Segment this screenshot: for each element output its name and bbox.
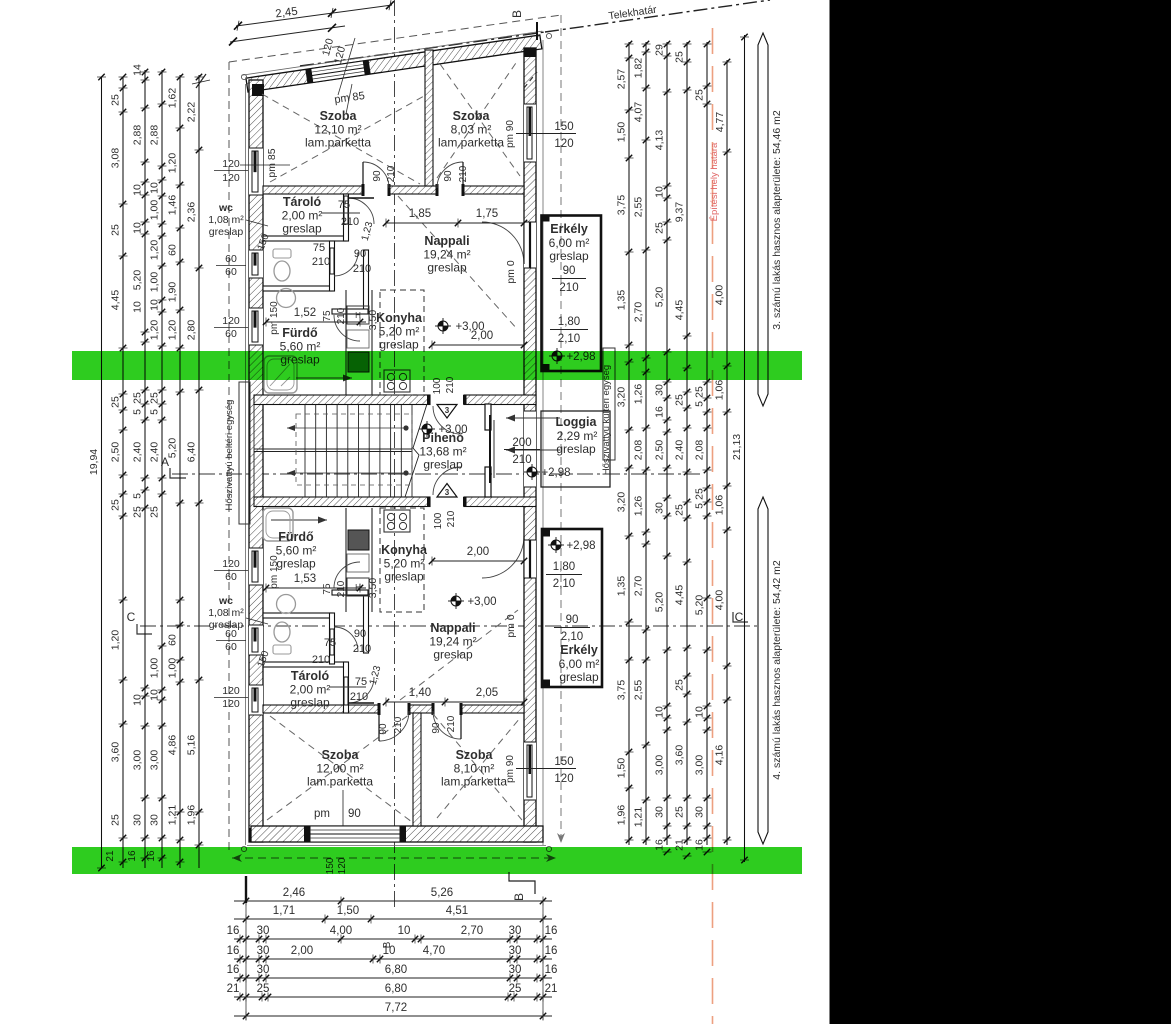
svg-text:120: 120 bbox=[554, 138, 573, 150]
svg-text:210: 210 bbox=[512, 454, 531, 466]
svg-text:5: 5 bbox=[694, 401, 706, 407]
svg-text:16: 16 bbox=[227, 925, 240, 937]
svg-text:Nappali: Nappali bbox=[430, 621, 475, 635]
svg-text:75: 75 bbox=[355, 676, 367, 688]
svg-text:4,77: 4,77 bbox=[714, 112, 726, 133]
svg-text:13,68 m²: 13,68 m² bbox=[419, 445, 466, 459]
svg-text:4,13: 4,13 bbox=[654, 130, 666, 151]
svg-text:3,00: 3,00 bbox=[149, 750, 161, 771]
svg-text:5,20 m²: 5,20 m² bbox=[379, 325, 420, 339]
svg-text:greslap: greslap bbox=[384, 570, 424, 584]
svg-text:30: 30 bbox=[509, 945, 522, 957]
svg-text:pm 90: pm 90 bbox=[505, 120, 516, 148]
svg-text:2,05: 2,05 bbox=[476, 687, 498, 699]
svg-text:3,00: 3,00 bbox=[694, 755, 706, 776]
svg-text:5,20: 5,20 bbox=[654, 592, 666, 613]
svg-text:75: 75 bbox=[322, 310, 333, 322]
svg-text:3,20: 3,20 bbox=[616, 387, 628, 408]
svg-text:1,20: 1,20 bbox=[167, 320, 179, 341]
svg-text:1,82: 1,82 bbox=[633, 58, 645, 79]
svg-text:16: 16 bbox=[654, 406, 666, 418]
svg-text:25: 25 bbox=[654, 222, 666, 234]
svg-text:pm 150: pm 150 bbox=[269, 555, 280, 589]
svg-text:pm 90: pm 90 bbox=[505, 755, 516, 783]
svg-text:2,55: 2,55 bbox=[633, 680, 645, 701]
svg-text:1,50: 1,50 bbox=[616, 122, 628, 143]
svg-text:90: 90 bbox=[431, 722, 442, 734]
svg-text:2,00: 2,00 bbox=[471, 330, 493, 342]
svg-text:90: 90 bbox=[443, 170, 454, 182]
svg-text:16: 16 bbox=[545, 964, 558, 976]
svg-text:Fürdő: Fürdő bbox=[278, 530, 314, 544]
svg-text:greslap: greslap bbox=[559, 670, 599, 684]
svg-text:2,10: 2,10 bbox=[553, 578, 575, 590]
svg-text:25: 25 bbox=[110, 499, 122, 511]
svg-text:30: 30 bbox=[149, 814, 161, 826]
svg-text:210: 210 bbox=[446, 510, 457, 527]
svg-text:4,07: 4,07 bbox=[633, 102, 645, 123]
svg-text:1,50: 1,50 bbox=[337, 905, 359, 917]
svg-text:30: 30 bbox=[257, 945, 270, 957]
svg-text:19,94: 19,94 bbox=[88, 449, 100, 475]
svg-text:30: 30 bbox=[694, 806, 706, 818]
svg-text:5,16: 5,16 bbox=[186, 735, 198, 756]
svg-text:greslap: greslap bbox=[549, 249, 589, 263]
svg-text:2,88: 2,88 bbox=[132, 125, 144, 146]
svg-text:pm 150: pm 150 bbox=[269, 301, 280, 335]
svg-text:5: 5 bbox=[132, 493, 144, 499]
svg-text:3,00: 3,00 bbox=[654, 755, 666, 776]
svg-text:2,40: 2,40 bbox=[149, 442, 161, 463]
svg-text:1,21: 1,21 bbox=[167, 805, 179, 826]
svg-text:Tároló: Tároló bbox=[283, 195, 322, 209]
svg-text:2,70: 2,70 bbox=[633, 302, 645, 323]
svg-text:2,08: 2,08 bbox=[633, 440, 645, 461]
svg-text:4,70: 4,70 bbox=[423, 945, 445, 957]
svg-text:210: 210 bbox=[350, 691, 368, 703]
svg-text:25: 25 bbox=[674, 394, 686, 406]
svg-text:1,00: 1,00 bbox=[149, 658, 161, 679]
svg-text:30: 30 bbox=[257, 964, 270, 976]
svg-text:30: 30 bbox=[654, 502, 666, 514]
svg-text:3: 3 bbox=[445, 488, 450, 497]
svg-text:Tároló: Tároló bbox=[291, 669, 330, 683]
svg-text:1,46: 1,46 bbox=[167, 195, 179, 216]
svg-text:25: 25 bbox=[149, 506, 161, 518]
svg-text:B: B bbox=[382, 941, 393, 948]
svg-text:B: B bbox=[510, 10, 524, 18]
svg-text:Konyha: Konyha bbox=[376, 311, 423, 325]
svg-text:1,90: 1,90 bbox=[167, 282, 179, 303]
svg-text:1,80: 1,80 bbox=[553, 561, 575, 573]
svg-text:3: 3 bbox=[445, 406, 450, 415]
svg-text:4,16: 4,16 bbox=[714, 745, 726, 766]
svg-text:lam.parketta: lam.parketta bbox=[441, 775, 507, 789]
svg-text:19,24 m²: 19,24 m² bbox=[423, 248, 470, 262]
svg-text:25: 25 bbox=[132, 506, 144, 518]
svg-text:1,40: 1,40 bbox=[409, 687, 431, 699]
svg-text:Szoba: Szoba bbox=[456, 748, 494, 762]
svg-text:6,40: 6,40 bbox=[186, 442, 198, 463]
svg-text:3,20: 3,20 bbox=[616, 492, 628, 513]
svg-text:30: 30 bbox=[257, 925, 270, 937]
svg-text:75: 75 bbox=[338, 199, 350, 211]
svg-text:10: 10 bbox=[132, 694, 144, 706]
svg-text:1,08 m²: 1,08 m² bbox=[208, 214, 244, 226]
svg-text:30: 30 bbox=[654, 384, 666, 396]
svg-text:wc: wc bbox=[218, 595, 233, 607]
svg-text:120: 120 bbox=[222, 558, 240, 570]
svg-text:Nappali: Nappali bbox=[424, 234, 469, 248]
svg-text:10: 10 bbox=[149, 182, 161, 194]
svg-text:1,50: 1,50 bbox=[616, 758, 628, 779]
svg-text:10: 10 bbox=[694, 706, 706, 718]
svg-text:2,55: 2,55 bbox=[633, 197, 645, 218]
svg-text:2,88: 2,88 bbox=[149, 125, 161, 146]
svg-text:60: 60 bbox=[225, 571, 237, 583]
svg-text:21: 21 bbox=[227, 983, 240, 995]
svg-text:10: 10 bbox=[149, 689, 161, 701]
svg-text:100: 100 bbox=[433, 512, 444, 529]
svg-text:wc: wc bbox=[218, 202, 233, 214]
svg-text:Szoba: Szoba bbox=[320, 109, 358, 123]
svg-text:1,26: 1,26 bbox=[633, 496, 645, 517]
svg-text:210: 210 bbox=[393, 716, 404, 733]
svg-text:pm 0: pm 0 bbox=[505, 614, 517, 638]
svg-text:2,00 m²: 2,00 m² bbox=[282, 209, 323, 223]
svg-text:2,57: 2,57 bbox=[616, 69, 628, 90]
svg-text:25: 25 bbox=[674, 504, 686, 516]
svg-text:2,40: 2,40 bbox=[132, 442, 144, 463]
svg-text:60: 60 bbox=[225, 328, 237, 340]
svg-text:4,45: 4,45 bbox=[110, 290, 122, 311]
svg-text:1,26: 1,26 bbox=[633, 384, 645, 405]
svg-text:60: 60 bbox=[225, 641, 237, 653]
svg-text:120: 120 bbox=[222, 685, 240, 697]
svg-text:10: 10 bbox=[398, 925, 411, 937]
svg-text:4,45: 4,45 bbox=[674, 300, 686, 321]
svg-text:210: 210 bbox=[312, 256, 330, 268]
svg-text:60: 60 bbox=[225, 628, 237, 640]
svg-text:lam.parketta: lam.parketta bbox=[305, 136, 371, 150]
svg-text:greslap: greslap bbox=[282, 222, 322, 236]
svg-text:16: 16 bbox=[545, 925, 558, 937]
svg-text:60: 60 bbox=[167, 634, 179, 646]
svg-text:1,96: 1,96 bbox=[616, 805, 628, 826]
svg-text:2,00: 2,00 bbox=[467, 546, 489, 558]
svg-text:5,20: 5,20 bbox=[167, 438, 179, 459]
svg-text:greslap: greslap bbox=[209, 226, 244, 238]
svg-text:4,00: 4,00 bbox=[714, 285, 726, 306]
svg-text:25: 25 bbox=[132, 392, 144, 404]
svg-text:5: 5 bbox=[149, 409, 161, 415]
svg-text:210: 210 bbox=[353, 643, 371, 655]
svg-text:120: 120 bbox=[222, 172, 240, 184]
svg-text:210: 210 bbox=[353, 263, 371, 275]
svg-text:pm: pm bbox=[314, 808, 330, 820]
svg-text:pm 85: pm 85 bbox=[266, 148, 278, 177]
svg-text:12,00 m²: 12,00 m² bbox=[316, 762, 363, 776]
svg-text:4,00: 4,00 bbox=[714, 590, 726, 611]
svg-text:29: 29 bbox=[654, 44, 666, 56]
svg-text:10: 10 bbox=[149, 299, 161, 311]
svg-text:2,70: 2,70 bbox=[461, 925, 483, 937]
svg-text:90: 90 bbox=[348, 808, 361, 820]
svg-text:3,00: 3,00 bbox=[132, 750, 144, 771]
svg-text:4,00: 4,00 bbox=[330, 925, 352, 937]
svg-text:75: 75 bbox=[324, 637, 336, 649]
svg-text:1,00: 1,00 bbox=[149, 272, 161, 293]
svg-text:1,20: 1,20 bbox=[167, 153, 179, 174]
svg-text:pm 0: pm 0 bbox=[505, 260, 517, 284]
svg-text:1,71: 1,71 bbox=[273, 905, 295, 917]
svg-text:210: 210 bbox=[386, 165, 397, 182]
svg-text:90: 90 bbox=[566, 614, 579, 626]
svg-text:2,00 m²: 2,00 m² bbox=[290, 683, 331, 697]
svg-text:25: 25 bbox=[674, 51, 686, 63]
svg-text:greslap: greslap bbox=[433, 648, 473, 662]
svg-text:Szoba: Szoba bbox=[453, 109, 491, 123]
svg-text:1,21: 1,21 bbox=[633, 807, 645, 828]
svg-text:1,96: 1,96 bbox=[186, 805, 198, 826]
svg-text:90: 90 bbox=[563, 265, 576, 277]
svg-text:150: 150 bbox=[554, 121, 573, 133]
svg-text:25: 25 bbox=[149, 392, 161, 404]
svg-text:8,03 m²: 8,03 m² bbox=[451, 123, 492, 137]
svg-text:60: 60 bbox=[167, 244, 179, 256]
svg-text:25: 25 bbox=[509, 983, 522, 995]
svg-text:200: 200 bbox=[512, 437, 531, 449]
svg-text:C: C bbox=[127, 610, 136, 624]
svg-text:1,06: 1,06 bbox=[714, 495, 726, 516]
svg-text:Erkély: Erkély bbox=[550, 222, 588, 236]
svg-text:60: 60 bbox=[225, 266, 237, 278]
svg-text:3,60: 3,60 bbox=[674, 745, 686, 766]
svg-text:1,85: 1,85 bbox=[409, 208, 431, 220]
svg-text:150: 150 bbox=[554, 756, 573, 768]
svg-text:210: 210 bbox=[312, 654, 330, 666]
svg-text:16: 16 bbox=[545, 945, 558, 957]
svg-text:Építési hely határa: Építési hely határa bbox=[709, 142, 720, 221]
svg-text:2,00: 2,00 bbox=[291, 945, 313, 957]
svg-text:1,20: 1,20 bbox=[110, 630, 122, 651]
svg-text:6,00 m²: 6,00 m² bbox=[549, 236, 590, 250]
svg-text:Hőszivattyú kültéri egység: Hőszivattyú kültéri egység bbox=[601, 365, 612, 475]
svg-text:3,50: 3,50 bbox=[367, 578, 379, 599]
svg-text:2,50: 2,50 bbox=[110, 442, 122, 463]
svg-text:+2,98: +2,98 bbox=[566, 540, 595, 552]
svg-text:2,50: 2,50 bbox=[654, 440, 666, 461]
svg-text:Szoba: Szoba bbox=[322, 748, 360, 762]
svg-text:lam.parketta: lam.parketta bbox=[307, 775, 373, 789]
svg-text:10: 10 bbox=[654, 186, 666, 198]
svg-text:5,26: 5,26 bbox=[431, 887, 453, 899]
svg-text:Fürdő: Fürdő bbox=[282, 326, 318, 340]
svg-text:1,00: 1,00 bbox=[149, 200, 161, 221]
svg-text:120: 120 bbox=[222, 698, 240, 710]
svg-text:3. számú lakás hasznos alapter: 3. számú lakás hasznos alapterülete: 54,… bbox=[771, 110, 783, 330]
svg-text:16: 16 bbox=[227, 945, 240, 957]
svg-text:1,06: 1,06 bbox=[714, 380, 726, 401]
svg-text:greslap: greslap bbox=[290, 696, 330, 710]
svg-text:210: 210 bbox=[336, 307, 347, 324]
svg-text:10: 10 bbox=[132, 184, 144, 196]
svg-text:25: 25 bbox=[110, 814, 122, 826]
svg-text:210: 210 bbox=[446, 715, 457, 732]
svg-text:+3,00: +3,00 bbox=[467, 596, 496, 608]
svg-text:2,80: 2,80 bbox=[186, 320, 198, 341]
svg-text:greslap: greslap bbox=[427, 261, 467, 275]
svg-text:4,45: 4,45 bbox=[674, 585, 686, 606]
svg-text:+3,00: +3,00 bbox=[438, 424, 467, 436]
svg-text:2,10: 2,10 bbox=[558, 333, 580, 345]
svg-text:Erkély: Erkély bbox=[560, 643, 598, 657]
svg-text:6,80: 6,80 bbox=[385, 964, 407, 976]
svg-text:1,20: 1,20 bbox=[149, 320, 161, 341]
svg-text:3,50: 3,50 bbox=[367, 310, 379, 331]
svg-text:Hőszivattyú beltéri egység: Hőszivattyú beltéri egység bbox=[224, 400, 235, 511]
svg-text:Konyha: Konyha bbox=[381, 543, 428, 557]
svg-text:90: 90 bbox=[378, 723, 389, 735]
svg-text:2,22: 2,22 bbox=[186, 102, 198, 123]
svg-text:25: 25 bbox=[110, 396, 122, 408]
svg-text:25: 25 bbox=[110, 94, 122, 106]
svg-text:1,00: 1,00 bbox=[167, 658, 179, 679]
svg-text:4,86: 4,86 bbox=[167, 735, 179, 756]
svg-text:greslap: greslap bbox=[556, 442, 596, 456]
svg-text:19,24 m²: 19,24 m² bbox=[429, 635, 476, 649]
svg-text:B: B bbox=[512, 893, 526, 901]
svg-text:21,13: 21,13 bbox=[731, 434, 743, 460]
svg-text:6,80: 6,80 bbox=[385, 983, 407, 995]
svg-text:5,20 m²: 5,20 m² bbox=[384, 557, 425, 571]
svg-text:5,60 m²: 5,60 m² bbox=[276, 544, 317, 558]
svg-text:1,35: 1,35 bbox=[616, 290, 628, 311]
svg-text:9,37: 9,37 bbox=[674, 202, 686, 223]
svg-text:1,35: 1,35 bbox=[616, 576, 628, 597]
svg-text:1,52: 1,52 bbox=[294, 307, 316, 319]
svg-text:1,53: 1,53 bbox=[294, 573, 316, 585]
svg-text:25: 25 bbox=[257, 983, 270, 995]
svg-text:2,40: 2,40 bbox=[674, 440, 686, 461]
svg-text:30: 30 bbox=[509, 964, 522, 976]
svg-text:4. számú lakás hasznos alapter: 4. számú lakás hasznos alapterülete: 54,… bbox=[771, 560, 783, 780]
svg-text:+2,98: +2,98 bbox=[541, 467, 570, 479]
svg-text:3,08: 3,08 bbox=[110, 148, 122, 169]
svg-text:5,20: 5,20 bbox=[694, 595, 706, 616]
svg-text:90: 90 bbox=[372, 170, 383, 182]
svg-text:3,60: 3,60 bbox=[110, 742, 122, 763]
svg-text:210: 210 bbox=[336, 580, 347, 597]
svg-text:25: 25 bbox=[694, 89, 706, 101]
svg-text:120: 120 bbox=[222, 315, 240, 327]
svg-text:Loggia: Loggia bbox=[556, 415, 598, 429]
svg-text:10: 10 bbox=[654, 706, 666, 718]
svg-text:75: 75 bbox=[313, 242, 325, 254]
svg-text:5,20: 5,20 bbox=[654, 287, 666, 308]
svg-text:2,70: 2,70 bbox=[633, 576, 645, 597]
svg-text:30: 30 bbox=[654, 806, 666, 818]
svg-text:2,08: 2,08 bbox=[694, 440, 706, 461]
svg-text:25: 25 bbox=[674, 679, 686, 691]
svg-text:10: 10 bbox=[132, 222, 144, 234]
svg-text:210: 210 bbox=[341, 216, 359, 228]
svg-text:12,10 m²: 12,10 m² bbox=[314, 123, 361, 137]
svg-text:210: 210 bbox=[559, 282, 578, 294]
svg-text:25: 25 bbox=[694, 386, 706, 398]
svg-text:90: 90 bbox=[354, 628, 366, 640]
svg-text:14: 14 bbox=[132, 64, 144, 76]
svg-text:30: 30 bbox=[509, 925, 522, 937]
svg-text:4,51: 4,51 bbox=[446, 905, 468, 917]
svg-text:25: 25 bbox=[694, 488, 706, 500]
svg-text:75: 75 bbox=[322, 583, 333, 595]
svg-text:16: 16 bbox=[227, 964, 240, 976]
svg-text:120: 120 bbox=[554, 773, 573, 785]
svg-text:2,46: 2,46 bbox=[283, 887, 305, 899]
svg-text:greslap: greslap bbox=[379, 338, 419, 352]
svg-text:1,80: 1,80 bbox=[558, 316, 580, 328]
svg-text:7,72: 7,72 bbox=[385, 1002, 407, 1014]
svg-text:2,29 m²: 2,29 m² bbox=[557, 429, 598, 443]
svg-text:greslap: greslap bbox=[276, 557, 316, 571]
svg-text:2,36: 2,36 bbox=[186, 202, 198, 223]
svg-text:3,75: 3,75 bbox=[616, 680, 628, 701]
svg-text:5: 5 bbox=[694, 503, 706, 509]
svg-text:1,75: 1,75 bbox=[476, 208, 498, 220]
svg-text:30: 30 bbox=[132, 814, 144, 826]
svg-text:3,75: 3,75 bbox=[616, 195, 628, 216]
svg-text:120: 120 bbox=[222, 158, 240, 170]
svg-text:6,00 m²: 6,00 m² bbox=[559, 657, 600, 671]
svg-text:90: 90 bbox=[354, 248, 366, 260]
svg-text:60: 60 bbox=[225, 253, 237, 265]
svg-text:10: 10 bbox=[132, 301, 144, 313]
svg-text:210: 210 bbox=[458, 165, 469, 182]
svg-text:greslap: greslap bbox=[423, 458, 463, 472]
svg-text:1,62: 1,62 bbox=[167, 88, 179, 109]
svg-text:1,20: 1,20 bbox=[149, 240, 161, 261]
svg-text:21: 21 bbox=[545, 983, 558, 995]
svg-text:1,08 m²: 1,08 m² bbox=[208, 607, 244, 619]
svg-text:5,20: 5,20 bbox=[132, 270, 144, 291]
svg-text:2,10: 2,10 bbox=[561, 631, 583, 643]
svg-text:5: 5 bbox=[132, 409, 144, 415]
svg-text:8,10 m²: 8,10 m² bbox=[454, 762, 495, 776]
svg-text:25: 25 bbox=[674, 806, 686, 818]
svg-text:25: 25 bbox=[110, 224, 122, 236]
svg-text:lam.parketta: lam.parketta bbox=[438, 136, 504, 150]
